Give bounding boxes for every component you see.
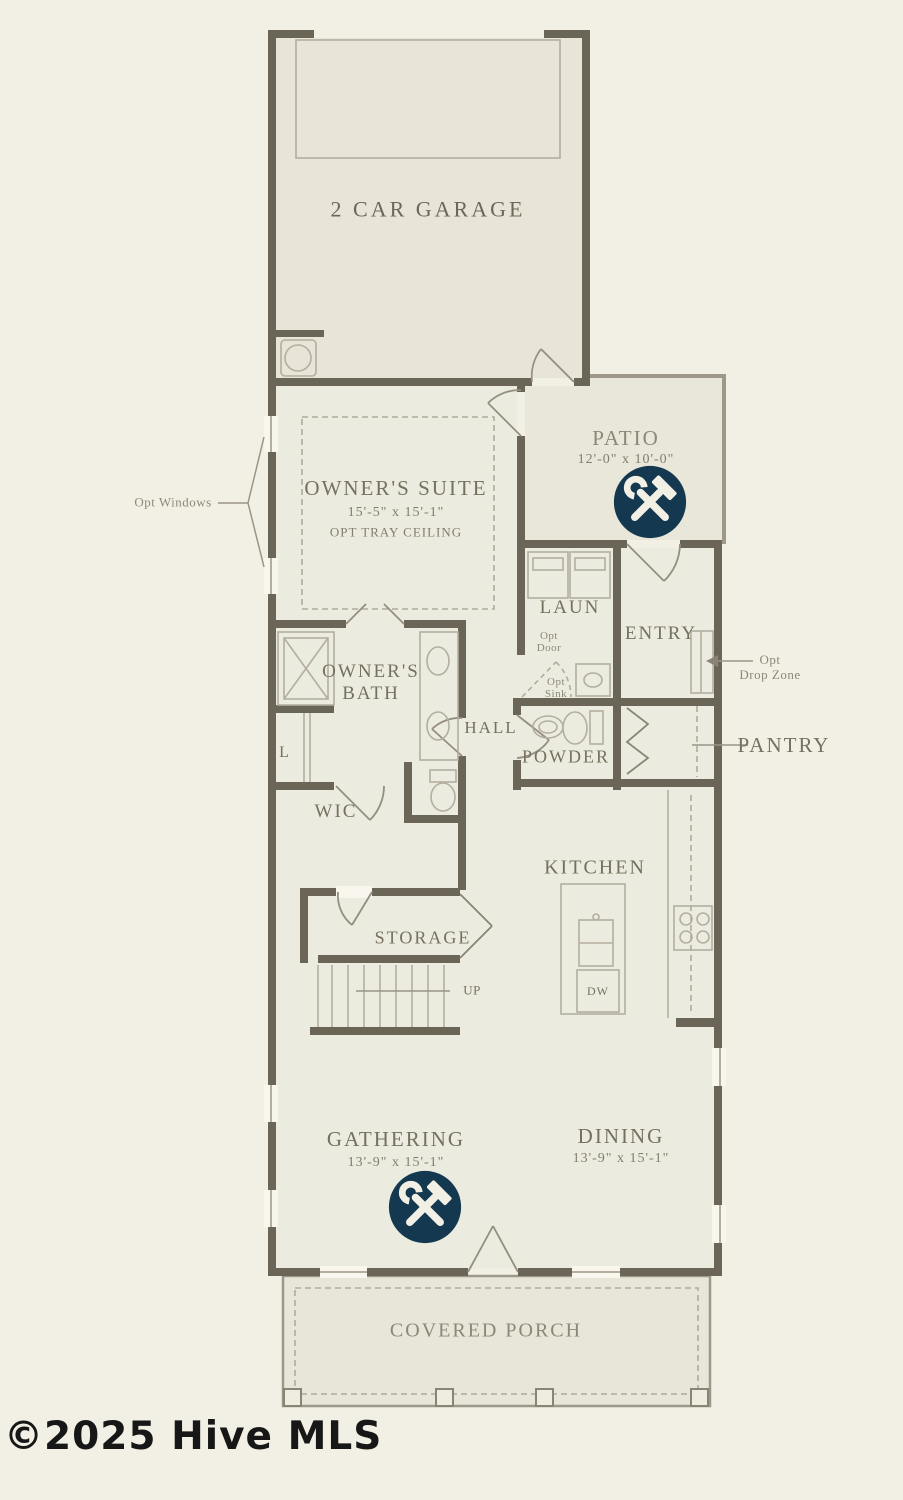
annotation-opt-door: Opt Door xyxy=(537,630,562,654)
dim-label-owners-suite: 15'-5" x 15'-1" xyxy=(348,505,445,521)
room-label-garage: 2 CAR GARAGE xyxy=(331,196,526,221)
room-label-wic: WIC xyxy=(315,801,358,823)
floor-plan-page: 2 CAR GARAGE OWNER'S SUITE 15'-5" x 15'-… xyxy=(0,0,903,1500)
hammer-wrench-icon xyxy=(387,1169,463,1245)
room-label-gathering: GATHERING xyxy=(327,1127,465,1151)
annotation-line: Opt xyxy=(739,653,800,668)
room-label-dining: DINING xyxy=(578,1124,665,1148)
dim-label-gathering: 13'-9" x 15'-1" xyxy=(348,1155,445,1171)
room-label-kitchen: KITCHEN xyxy=(544,857,646,880)
annotation-line: Sink xyxy=(545,688,567,700)
room-label-powder: POWDER xyxy=(522,747,610,768)
room-label-patio: PATIO xyxy=(592,426,660,450)
porch-post xyxy=(284,1389,301,1406)
room-label-owners-bath: OWNER'S BATH xyxy=(306,661,436,705)
room-label-hall: HALL xyxy=(464,718,517,738)
annotation-line: Opt xyxy=(545,676,567,688)
room-label-pantry: PANTRY xyxy=(738,733,831,757)
room-label-covered-porch: COVERED PORCH xyxy=(390,1320,582,1343)
annotation-line: Opt xyxy=(537,630,562,642)
room-label-laundry: LAUN xyxy=(540,597,601,619)
room-label-entry: ENTRY xyxy=(625,623,697,645)
customization-icon-patio[interactable] xyxy=(612,464,688,540)
hammer-wrench-icon xyxy=(612,464,688,540)
porch-post xyxy=(436,1389,453,1406)
annotation-up: UP xyxy=(463,984,481,999)
opt-windows-leader xyxy=(218,437,264,567)
annotation-linen: L xyxy=(279,744,291,762)
dim-label-dining: 13'-9" x 15'-1" xyxy=(573,1151,670,1167)
room-label-owners-suite: OWNER'S SUITE xyxy=(304,476,487,500)
annotation-line: Drop Zone xyxy=(739,668,800,683)
watermark: ©2025 Hive MLS xyxy=(4,1414,382,1459)
note-label-tray-ceiling: OPT TRAY CEILING xyxy=(330,526,462,541)
annotation-line: Door xyxy=(537,642,562,654)
annotation-opt-drop-zone: Opt Drop Zone xyxy=(739,653,800,683)
dim-label-patio: 12'-0" x 10'-0" xyxy=(578,452,675,468)
annotation-opt-sink: Opt Sink xyxy=(545,676,567,700)
customization-icon-gathering[interactable] xyxy=(387,1169,463,1245)
porch-post xyxy=(536,1389,553,1406)
annotation-dw: DW xyxy=(587,985,609,999)
room-label-storage: STORAGE xyxy=(375,928,472,949)
annotation-opt-windows: Opt Windows xyxy=(134,496,211,511)
porch-post xyxy=(691,1389,708,1406)
